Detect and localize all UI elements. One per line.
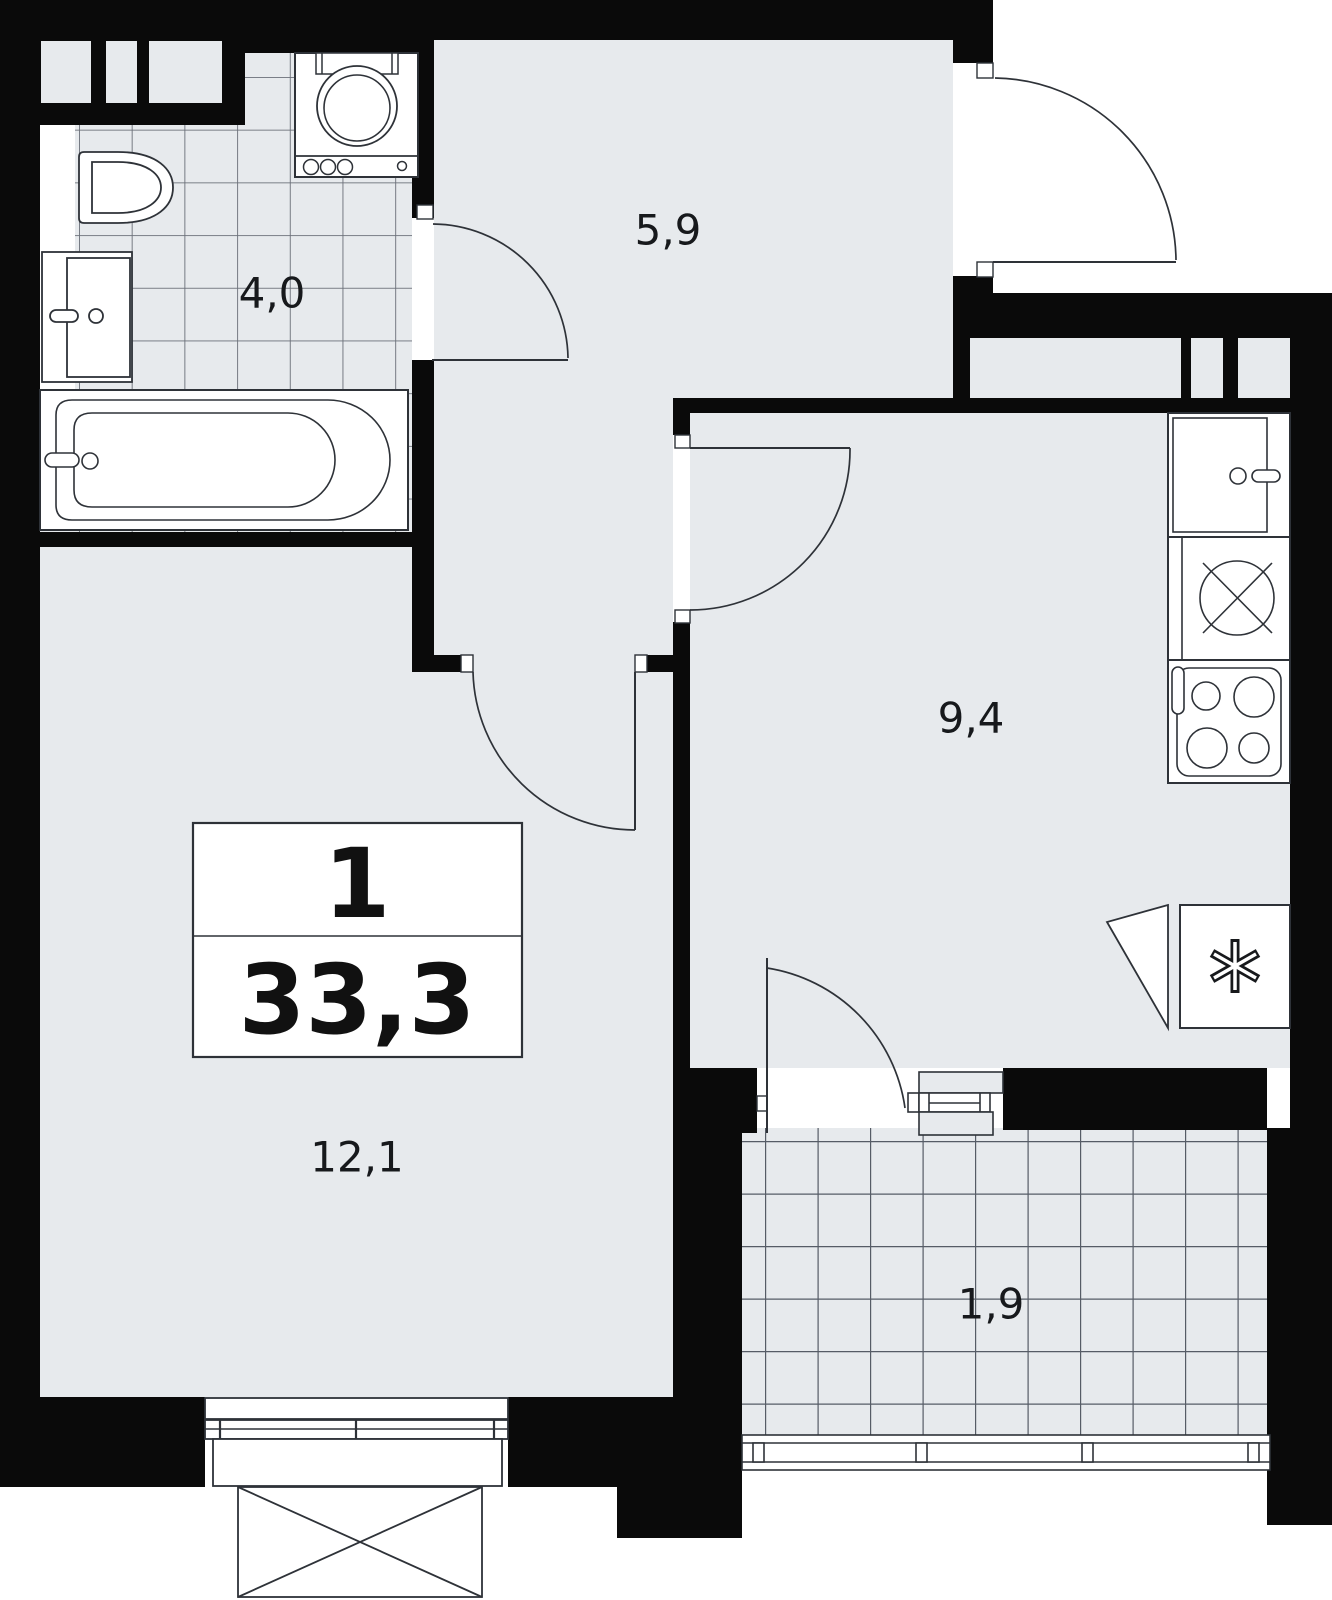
summary-box: 1 33,3 [193,823,522,1057]
balcony-window window-icon [908,1072,1003,1135]
shaft [149,41,222,103]
toilet-icon [79,152,173,223]
floor-plan: 4,0 5,9 9,4 12,1 1,9 1 33,3 [0,0,1332,1600]
shaft [1238,338,1290,398]
shaft [1191,338,1223,398]
total-area-label: 33,3 [239,944,476,1056]
living-room-area-label: 12,1 [310,1133,404,1182]
balcony-railing-icon [742,1435,1270,1470]
shaft [41,41,91,103]
bathroom-area-label: 4,0 [239,269,306,318]
hallway-area-label: 5,9 [635,206,702,255]
rooms-count-label: 1 [324,828,391,940]
bath-sink-icon [42,252,132,382]
balcony-area-label: 1,9 [958,1280,1025,1329]
bathtub-icon [40,390,408,530]
exterior-basket-icon [238,1487,482,1597]
kitchen-sink-icon [1168,413,1290,537]
refrigerator-snowflake-icon [1180,905,1290,1028]
shaft [106,41,137,103]
stove-icon [1168,660,1290,783]
kitchen-area-label: 9,4 [938,694,1005,743]
washing-machine-icon [295,53,418,177]
shaft [970,338,1181,398]
hob-circle-icon [1168,537,1290,660]
living-room-window window-icon [205,1398,508,1597]
floor-plan-page: 4,0 5,9 9,4 12,1 1,9 1 33,3 [0,0,1332,1600]
